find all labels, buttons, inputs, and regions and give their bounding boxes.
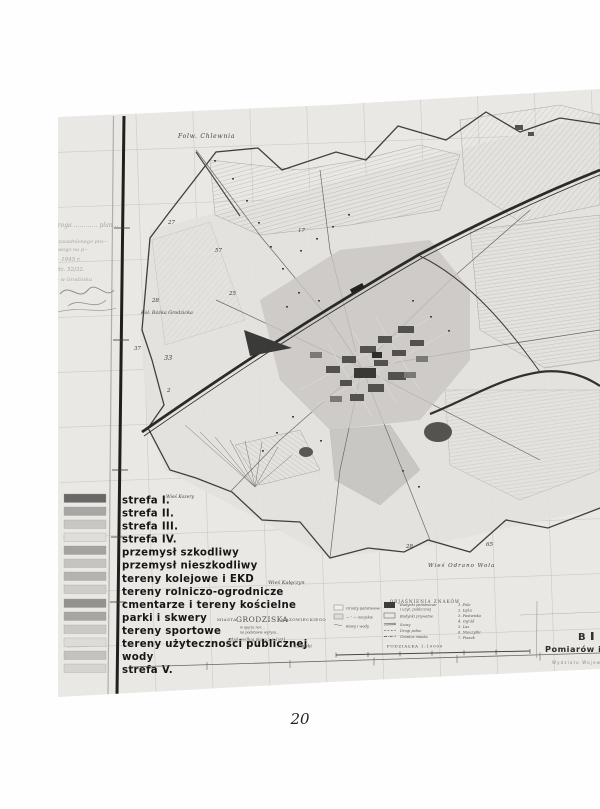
key-swatch [334, 614, 343, 619]
zone-label: strefa II. [122, 509, 174, 520]
zone-label: tereny rolniczo-ogrodnicze [122, 587, 284, 598]
map-title-prefix: MIASTA [217, 617, 237, 622]
zone-label: tereny sportowe [122, 626, 221, 637]
parcel-number: 57 [215, 248, 222, 254]
map-subtitle: w ujęciu nor… [240, 626, 265, 630]
park-patch [424, 422, 452, 442]
village-label-wies-kozery: Wieś Kozery [166, 493, 195, 500]
stamp-cut-letter [591, 632, 594, 640]
key-label: Szosy [400, 623, 411, 627]
parcel-number: 25 [228, 291, 236, 297]
scale-label: PODZIAŁKA 1:10000 [387, 644, 443, 649]
zone-swatch [64, 572, 106, 581]
handwriting-line: L. dz. 52/32. [49, 267, 85, 273]
zone-swatch [64, 507, 106, 516]
key-label: 7. Piasek [458, 636, 476, 640]
key-label: Budynki prywatne [399, 615, 433, 619]
key-swatch [334, 605, 343, 610]
zone-swatch [64, 612, 106, 621]
zone-swatch [64, 494, 106, 503]
key-label: Granica miasta [400, 635, 428, 639]
zone-swatch [64, 664, 106, 673]
key-label: Drogi polne [399, 629, 421, 633]
map-title-suffix: MAZOWIECKIEGO [281, 617, 326, 622]
village-label-folw-chlewnia: Folw. Chlewnia [177, 133, 235, 140]
handwriting-line: —owego na p— [50, 247, 89, 253]
map-subtitle: na podstawie wyrysu… [240, 631, 280, 635]
key-swatch [384, 602, 395, 608]
key-label: i użyt. publicznej [400, 608, 432, 612]
key-label: 3. Pastwisko [458, 614, 482, 618]
scanned-map-page: — droga ………… plan… t. uzasadnionego pra—… [0, 0, 600, 809]
parcel-number: 33 [164, 354, 172, 362]
village-label-wies-kaleczyn: Wieś Kałęczyn [268, 579, 305, 586]
handwriting-line: t. uzasadnionego pra— [50, 239, 108, 245]
key-label: 5. Las [458, 625, 469, 629]
key-label: — ″ — miejskie [346, 616, 373, 620]
zone-swatch [64, 638, 106, 647]
handwriting-line: — droga ………… plan… [46, 222, 119, 229]
key-label: 2. Łąka [457, 609, 472, 613]
zone-label: tereny kolejowe i EKD [122, 574, 254, 585]
key-label: Grunty państwowe [346, 607, 380, 611]
zone-label: przemysł nieszkodliwy [122, 561, 258, 572]
map-surveyor-name: … Czapski [288, 644, 312, 650]
zone-swatch [64, 533, 106, 542]
zone-swatch [64, 546, 106, 555]
zone-label: strefa III. [122, 522, 178, 533]
zone-swatch [64, 559, 106, 568]
key-label: 4. Ogród [457, 620, 475, 624]
handwriting-line: — 1945 r. [54, 257, 81, 263]
stamp-line2: Pomiarów i [545, 644, 600, 654]
key-label: Budynki państwowe [399, 603, 437, 607]
parcel-number: 65 [486, 542, 493, 548]
zone-swatch [64, 599, 106, 608]
zone-label: strefa IV. [122, 535, 177, 546]
zone-swatch [64, 520, 106, 529]
zone-swatch [64, 651, 106, 660]
zone-label: strefa I. [122, 496, 170, 507]
pond [299, 447, 313, 457]
parcel-number: 2 [166, 388, 171, 394]
zone-swatch [64, 585, 106, 594]
stamp-line3: Wydziału Wojew. [552, 660, 600, 665]
village-label-wies-odrano-wola: Wieś Odrano Wola [428, 562, 495, 569]
zone-label: parki i skwery [122, 613, 207, 624]
parcel-number: 28 [151, 298, 159, 304]
zone-swatch [64, 625, 106, 634]
key-label: 6. Nieużytki [458, 631, 481, 635]
zone-label: wody [122, 652, 154, 663]
parcel-number: 37 [134, 346, 141, 352]
zone-label: przemysł szkodliwy [122, 548, 239, 559]
parcel-number: 17 [298, 228, 305, 234]
parcel-number: 27 [167, 220, 175, 226]
handwriting-line: — w Grodzisku [54, 277, 92, 283]
stamp-line1: B [578, 632, 586, 643]
map-survey-credit: Zdjął według planu z r. 1931 [227, 637, 286, 642]
key-label: Rowy i wody [345, 625, 370, 629]
zone-label: cmentarze i tereny kościelne [122, 599, 296, 611]
village-label-kol-rozka: Kol. Różka Grodzicka [140, 309, 193, 316]
key-label: 1. Pole [458, 603, 471, 607]
parcel-number: 28 [405, 544, 413, 550]
page-number: 20 [0, 710, 600, 728]
